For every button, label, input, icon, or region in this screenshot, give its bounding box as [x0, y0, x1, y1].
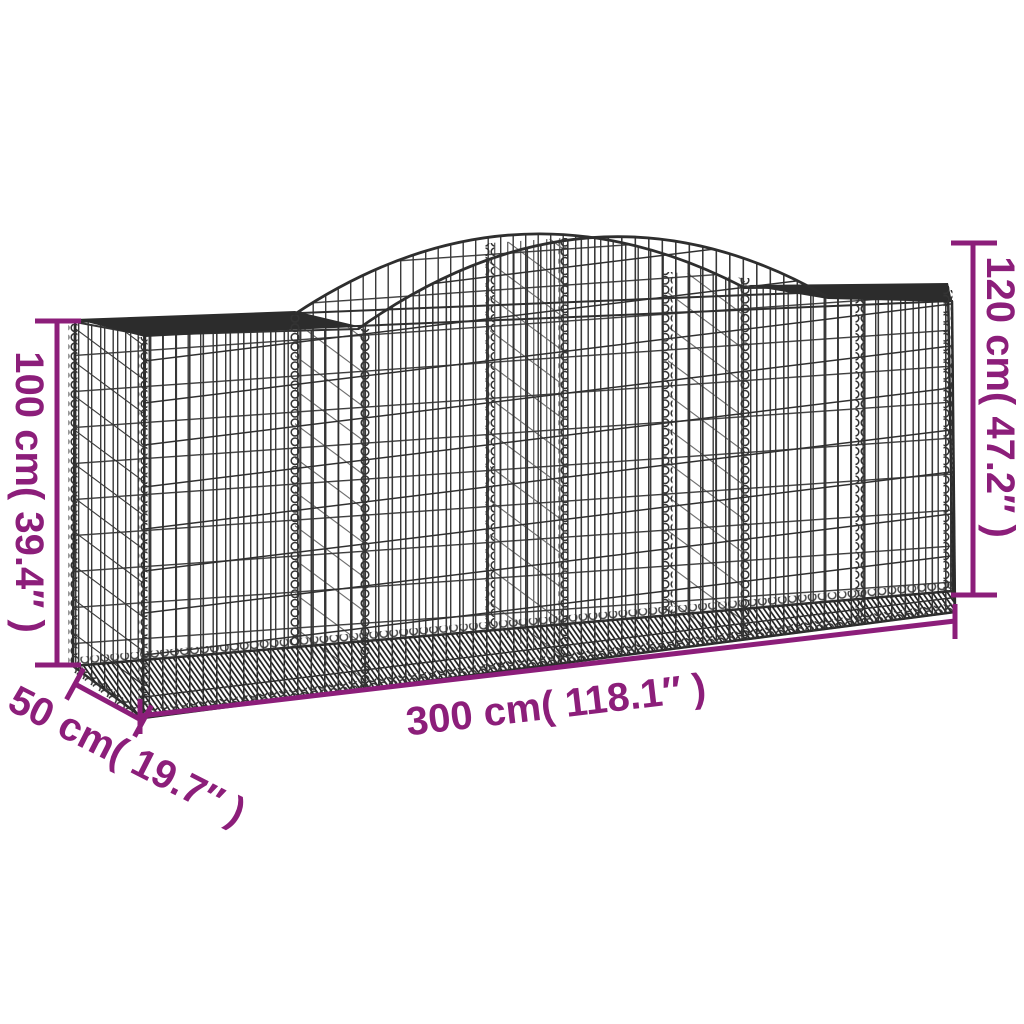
product-dimension-diagram: 100 cm( 39.4″ ) 120 cm( 47.2″ ) 300 cm( …	[0, 0, 1024, 1024]
height-left-label: 100 cm( 39.4″ )	[7, 351, 51, 633]
height-right-label: 120 cm( 47.2″ )	[978, 256, 1022, 538]
gabion-diagram-svg: 100 cm( 39.4″ ) 120 cm( 47.2″ ) 300 cm( …	[0, 0, 1024, 1024]
gabion-basket-drawing	[69, 234, 956, 722]
